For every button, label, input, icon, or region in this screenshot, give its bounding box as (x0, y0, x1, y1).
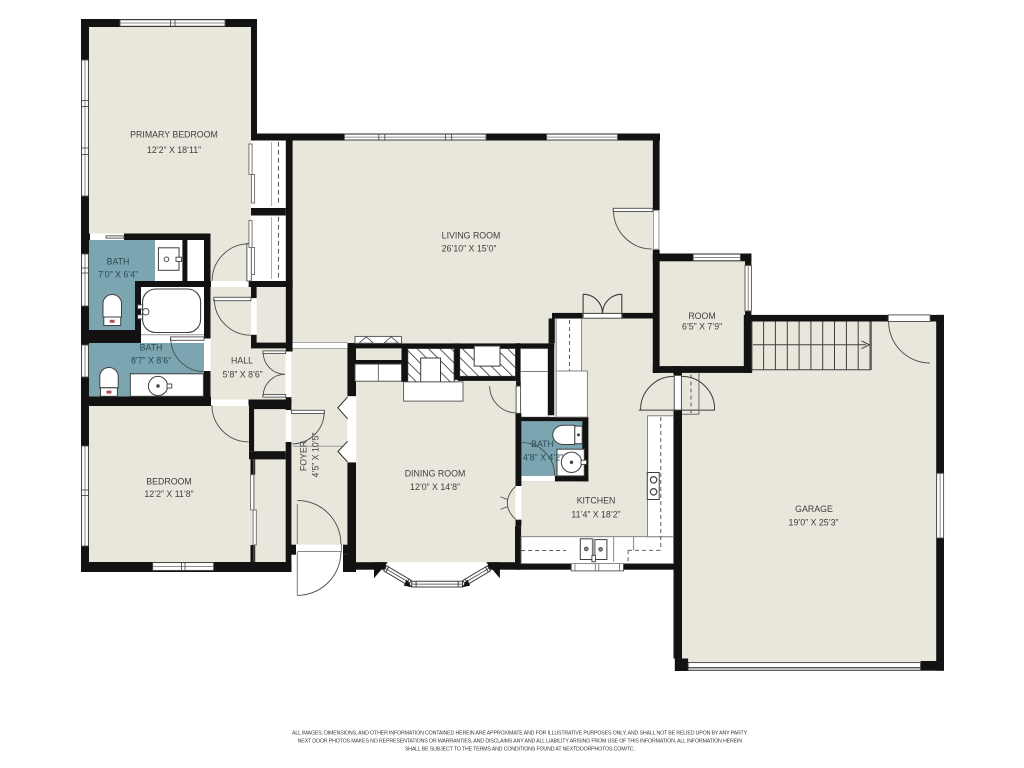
svg-text:FOYER: FOYER (299, 441, 309, 471)
svg-text:8’7” X 8’6”: 8’7” X 8’6” (131, 356, 171, 366)
svg-text:DINING ROOM: DINING ROOM (405, 469, 466, 479)
svg-text:12’2” X 11’8”: 12’2” X 11’8” (144, 489, 193, 499)
svg-text:12’0” X 14’8”: 12’0” X 14’8” (410, 482, 460, 492)
svg-text:SHALL BE SUBJECT TO THE TERMS: SHALL BE SUBJECT TO THE TERMS AND CONDIT… (405, 747, 635, 753)
svg-text:NEXT DOOR PHOTOS MAKES NO REPR: NEXT DOOR PHOTOS MAKES NO REPRESENTATION… (298, 739, 743, 745)
svg-text:ALL IMAGES, DIMENSIONS, AND OT: ALL IMAGES, DIMENSIONS, AND OTHER INFORM… (292, 731, 748, 737)
svg-text:5’8” X 8’6”: 5’8” X 8’6” (223, 370, 263, 380)
svg-text:ROOM: ROOM (688, 311, 715, 321)
svg-text:6’5” X 7’9”: 6’5” X 7’9” (682, 322, 722, 332)
svg-text:GARAGE: GARAGE (795, 504, 833, 514)
svg-text:LIVING ROOM: LIVING ROOM (442, 231, 501, 241)
svg-text:BATH: BATH (531, 439, 554, 449)
svg-text:KITCHEN: KITCHEN (577, 496, 616, 506)
svg-text:PRIMARY BEDROOM: PRIMARY BEDROOM (130, 130, 218, 140)
svg-text:BEDROOM: BEDROOM (146, 477, 191, 487)
svg-text:4’5” X 10’5”: 4’5” X 10’5” (311, 432, 321, 477)
svg-text:7’0” X 6’4”: 7’0” X 6’4” (98, 270, 138, 280)
svg-text:HALL: HALL (231, 356, 253, 366)
svg-text:19’0” X 25’3”: 19’0” X 25’3” (789, 518, 839, 528)
svg-text:12’2” X 18’11”: 12’2” X 18’11” (147, 145, 201, 155)
svg-text:4’8” X 4’2”: 4’8” X 4’2” (523, 453, 563, 463)
svg-text:BATH: BATH (107, 257, 130, 267)
svg-text:11’4” X 18’2”: 11’4” X 18’2” (571, 510, 620, 520)
svg-text:26’10” X 15’0”: 26’10” X 15’0” (442, 244, 497, 254)
svg-text:BATH: BATH (140, 343, 163, 353)
